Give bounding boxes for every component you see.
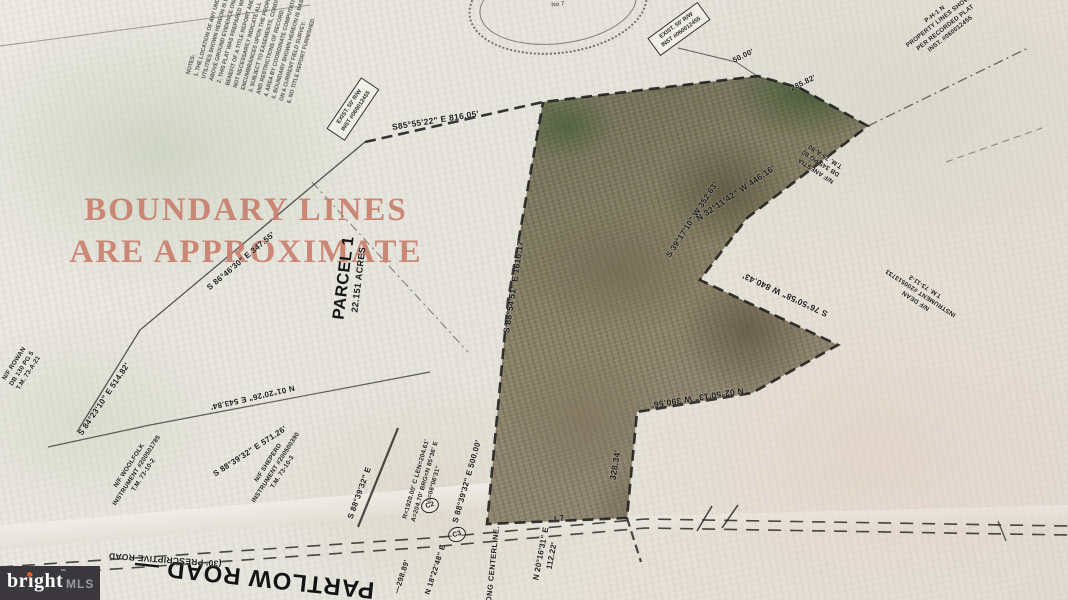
brightmls-mls-text: MLS (66, 577, 94, 591)
plat-aerial-overlay: BOUNDARY LINES ARE APPROXIMATE PARCEL 1 … (0, 0, 1068, 600)
brightmls-dot-icon (27, 572, 32, 577)
right-road-tick (998, 521, 1006, 541)
line-label-l7: L7 (553, 513, 565, 524)
disclaimer-line-1: BOUNDARY LINES (62, 190, 430, 232)
front-adjacent-boundary-line (48, 372, 430, 447)
bright-mls-watermark: bright ™ MLS (0, 566, 100, 600)
brightmls-brand-text: bright (7, 570, 63, 593)
northeast-dash-line (946, 128, 1042, 162)
trademark-symbol: ™ (60, 569, 66, 575)
boundary-road-jog-line (627, 518, 641, 562)
west-adjacent-boundary-line (77, 142, 365, 432)
road-tick-marks (697, 505, 738, 531)
